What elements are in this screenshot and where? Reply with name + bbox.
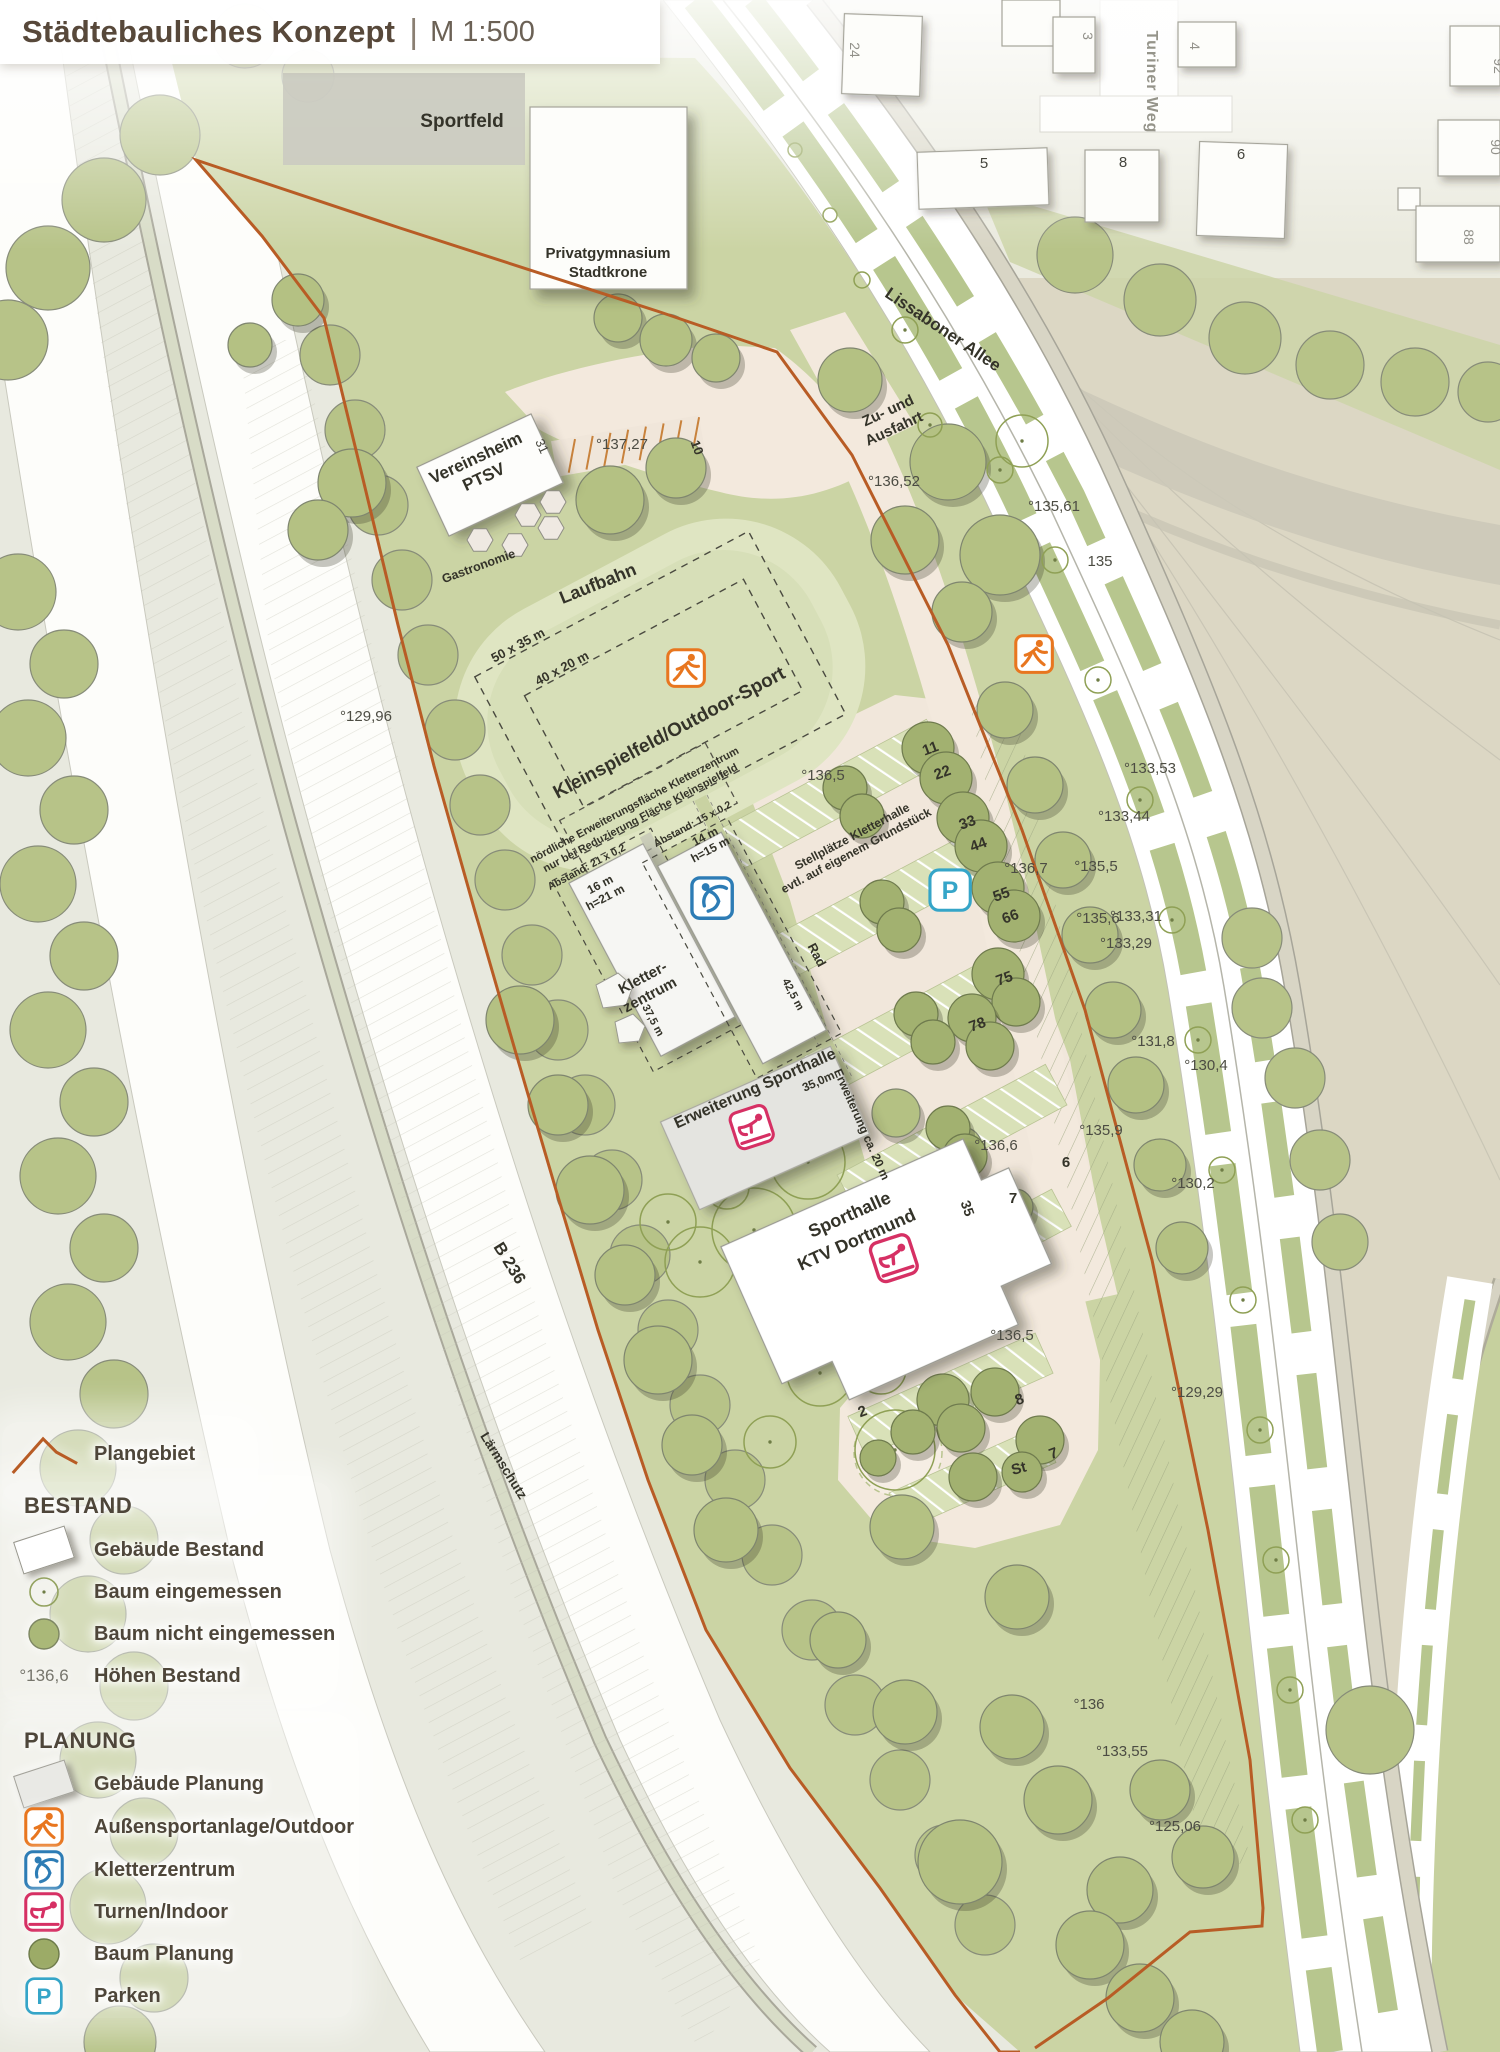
housenumber-92: 92 xyxy=(1491,58,1500,74)
title-bar: Städtebauliches Konzept | M 1:500 xyxy=(0,0,660,64)
existing-tree xyxy=(60,1068,128,1136)
legend-label-baum-eingemessen: Baum eingemessen xyxy=(94,1581,282,1604)
existing-tree xyxy=(1381,348,1449,416)
legend-item-kletterzentrum: Kletterzentrum xyxy=(8,1848,235,1892)
legend-item-baum-nicht-eingemessen: Baum nicht eingemessen xyxy=(8,1612,335,1656)
existing-tree xyxy=(1108,1057,1164,1113)
legend-item-parken: P Parken xyxy=(8,1974,161,2018)
planned-tree xyxy=(949,1453,997,1501)
existing-tree xyxy=(977,682,1033,738)
label-turiner-weg: Turiner Weg xyxy=(1143,31,1160,134)
plangebiet-boundary-icon xyxy=(8,1428,80,1480)
existing-tree xyxy=(594,294,642,342)
existing-tree xyxy=(870,1495,934,1559)
legend-label-parken: Parken xyxy=(94,1985,161,2008)
legend-item-baum-planung: Baum Planung xyxy=(8,1932,234,1976)
parking-legend-letter: P xyxy=(37,1984,52,2009)
existing-tree xyxy=(871,506,939,574)
legend-label-plangebiet: Plangebiet xyxy=(94,1443,195,1466)
existing-tree xyxy=(1326,1686,1414,1774)
housenumber-24: 24 xyxy=(847,42,863,58)
existing-tree xyxy=(288,500,348,560)
existing-tree xyxy=(80,1360,148,1428)
elev-136-52: °136,52 xyxy=(868,473,920,490)
existing-tree xyxy=(810,1612,866,1668)
elev-131-8: °131,8 xyxy=(1131,1033,1175,1050)
legend-item-gebaeude-planung: Gebäude Planung xyxy=(8,1762,264,1806)
elevation-sample-icon: °136,6 xyxy=(19,1666,68,1686)
existing-building-icon xyxy=(13,1525,75,1574)
existing-tree xyxy=(818,348,882,412)
existing-tree xyxy=(30,630,98,698)
existing-tree xyxy=(1232,978,1292,1038)
existing-tree xyxy=(692,334,740,382)
elev-135-61: °135,61 xyxy=(1028,498,1080,515)
existing-tree xyxy=(20,1138,96,1214)
elev-133-29: °133,29 xyxy=(1100,935,1152,952)
legend-label-gebaeude-bestand: Gebäude Bestand xyxy=(94,1539,264,1562)
elev-133-31: °133,31 xyxy=(1110,908,1162,925)
legend-heading-planung: PLANUNG xyxy=(24,1728,136,1754)
existing-tree xyxy=(1056,1911,1124,1979)
existing-tree xyxy=(40,776,108,844)
existing-tree xyxy=(1130,1760,1190,1820)
planned-building-icon xyxy=(13,1759,75,1808)
unmeasured-tree-icon xyxy=(26,1616,62,1652)
housenumber-90: 90 xyxy=(1488,139,1500,155)
existing-tree xyxy=(502,925,562,985)
existing-tree xyxy=(475,850,535,910)
legend-item-baum-eingemessen: Baum eingemessen xyxy=(8,1570,282,1614)
existing-tree xyxy=(980,1695,1044,1759)
elev-133-44: °133,44 xyxy=(1098,808,1150,825)
elev-137-27: °137,27 xyxy=(596,436,648,453)
existing-tree xyxy=(300,325,360,385)
planned-tree xyxy=(860,1440,896,1476)
housenumber-3: 3 xyxy=(1080,32,1096,40)
existing-tree xyxy=(873,1680,937,1744)
existing-tree xyxy=(10,992,86,1068)
housenumber-88: 88 xyxy=(1461,229,1477,245)
planned-tree xyxy=(971,1368,1019,1416)
existing-tree xyxy=(870,1750,930,1810)
legend-label-turnen: Turnen/Indoor xyxy=(94,1901,228,1924)
existing-tree xyxy=(1085,982,1141,1038)
existing-tree xyxy=(486,986,554,1054)
measured-tree-icon xyxy=(27,1575,61,1609)
housenumber-8: 8 xyxy=(1119,154,1127,171)
housenumber-6: 6 xyxy=(1237,146,1245,163)
legend-label-kletterzentrum: Kletterzentrum xyxy=(94,1859,235,1882)
elev-133-55: °133,55 xyxy=(1096,1743,1148,1760)
legend-label-gebaeude-planung: Gebäude Planung xyxy=(94,1773,264,1796)
legend-label-aussensport: Außensportanlage/Outdoor xyxy=(94,1816,354,1839)
planned-tree-icon xyxy=(25,1935,63,1973)
existing-tree xyxy=(872,1089,920,1137)
existing-tree xyxy=(1209,302,1281,374)
existing-tree xyxy=(595,1245,655,1305)
legend-label-baum-planung: Baum Planung xyxy=(94,1943,234,1966)
existing-tree xyxy=(1222,908,1282,968)
parking-legend-icon: P xyxy=(25,1977,63,2015)
existing-tree xyxy=(450,775,510,835)
existing-tree xyxy=(70,1214,138,1282)
existing-tree xyxy=(556,1156,624,1224)
climbing-icon xyxy=(692,878,732,918)
existing-tree xyxy=(1007,757,1063,813)
elev-130-4: °130,4 xyxy=(1184,1057,1228,1074)
existing-tree xyxy=(1106,1964,1174,2032)
title-separator: | xyxy=(409,13,418,52)
elev-130-2: °130,2 xyxy=(1171,1175,1215,1192)
elev-136-5a: °136,5 xyxy=(801,767,845,784)
planned-tree xyxy=(891,1410,935,1454)
outdoor-sport-icon-2 xyxy=(1016,636,1053,673)
legend-item-turnen: Turnen/Indoor xyxy=(8,1890,228,1934)
existing-tree xyxy=(1312,1214,1368,1270)
existing-tree xyxy=(910,424,986,500)
legend-label-baum-nicht: Baum nicht eingemessen xyxy=(94,1623,335,1646)
elev-125-06: °125,06 xyxy=(1149,1818,1201,1835)
label-gymnasium-1: Privatgymnasium xyxy=(545,245,670,262)
elev-136-6: °136,6 xyxy=(974,1137,1018,1154)
existing-tree xyxy=(1265,1048,1325,1108)
planned-tree xyxy=(877,908,921,952)
existing-tree xyxy=(694,1498,758,1562)
elev-129-29: °129,29 xyxy=(1171,1384,1223,1401)
page-title: Städtebauliches Konzept xyxy=(22,14,395,50)
label-sportfeld: Sportfeld xyxy=(420,111,503,132)
parkcount-7a: 7 xyxy=(1009,1190,1017,1207)
planned-tree xyxy=(911,1020,955,1064)
housenumber-4: 4 xyxy=(1187,42,1203,50)
outdoor-sport-icon xyxy=(668,650,705,687)
elev-135-5: °135,5 xyxy=(1074,858,1118,875)
existing-tree xyxy=(1296,331,1364,399)
legend-label-hoehen: Höhen Bestand xyxy=(94,1665,241,1688)
existing-tree xyxy=(985,1565,1049,1629)
elev-133-53: °133,53 xyxy=(1124,760,1176,777)
existing-tree xyxy=(50,922,118,990)
parkcount-6: 6 xyxy=(1062,1154,1070,1171)
existing-tree xyxy=(228,323,272,367)
existing-tree xyxy=(1124,264,1196,336)
planned-tree xyxy=(937,1404,985,1452)
climbing-legend-icon xyxy=(24,1850,64,1890)
existing-tree xyxy=(30,1284,106,1360)
existing-tree xyxy=(0,846,76,922)
elev-135: 135 xyxy=(1087,553,1112,570)
elev-136-7: °136,7 xyxy=(1004,860,1048,877)
existing-tree xyxy=(1156,1222,1208,1274)
elev-136: °136 xyxy=(1073,1696,1104,1713)
legend-item-aussensport: Außensportanlage/Outdoor xyxy=(8,1805,354,1849)
elev-136-5b: °136,5 xyxy=(990,1327,1034,1344)
elev-135-9: °135,9 xyxy=(1079,1122,1123,1139)
elev-129-96: °129,96 xyxy=(340,708,392,725)
existing-tree xyxy=(918,1820,1002,1904)
existing-tree xyxy=(1024,1766,1092,1834)
existing-tree xyxy=(425,700,485,760)
existing-tree xyxy=(1172,1826,1234,1888)
outdoor-sport-legend-icon xyxy=(24,1807,64,1847)
gymnast-legend-icon xyxy=(24,1892,64,1932)
legend-item-hoehen-bestand: °136,6 Höhen Bestand xyxy=(8,1654,241,1698)
existing-tree xyxy=(576,466,644,534)
existing-tree xyxy=(624,1326,692,1394)
housenumber-5: 5 xyxy=(980,155,988,172)
legend-item-plangebiet: Plangebiet xyxy=(8,1432,195,1476)
existing-tree xyxy=(1290,1130,1350,1190)
map-scale: M 1:500 xyxy=(430,16,535,49)
parking-icon-letter: P xyxy=(942,877,959,905)
existing-tree xyxy=(662,1415,722,1475)
label-gymnasium-2: Stadtkrone xyxy=(569,264,647,281)
legend-item-gebaeude-bestand: Gebäude Bestand xyxy=(8,1528,264,1572)
existing-tree xyxy=(960,515,1040,595)
legend-heading-bestand: BESTAND xyxy=(24,1493,132,1519)
